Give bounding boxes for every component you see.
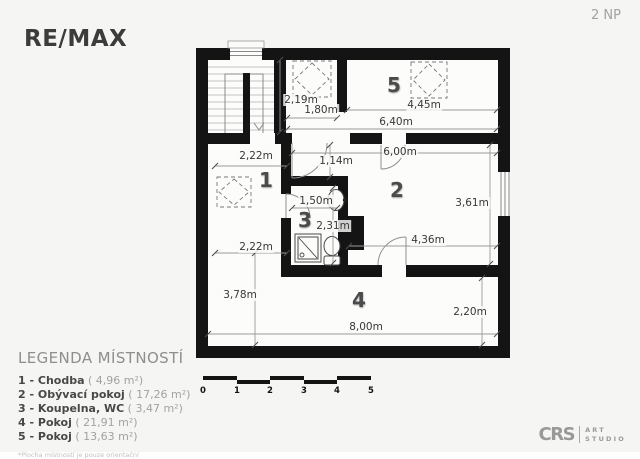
art-studio-logo: CRS ART STUDIO xyxy=(539,424,626,445)
dimension-label: 2,22m xyxy=(238,241,274,253)
scale-bar-graphic xyxy=(203,376,371,384)
legend-room-name: 5 - Pokoj xyxy=(18,430,72,443)
legend-room-name: 4 - Pokoj xyxy=(18,416,72,429)
room-label-4: 4 xyxy=(352,288,366,312)
dimension-label: 8,00m xyxy=(348,321,384,333)
room-legend: LEGENDA MÍSTNOSTÍ 1 - Chodba ( 4,96 m²) … xyxy=(18,349,190,459)
legend-room-name: 3 - Koupelna, WC xyxy=(18,402,124,415)
stair-center-wall xyxy=(243,73,250,133)
dimension-label: 1,50m xyxy=(298,195,334,207)
dimension-label: 2,31m xyxy=(315,220,351,232)
legend-footnote: *Plocha místností je pouze orientační xyxy=(18,451,190,459)
legend-item: 5 - Pokoj ( 13,63 m²) xyxy=(18,430,190,444)
dimension-label: 2,20m xyxy=(452,306,488,318)
legend-item: 2 - Obývací pokoj ( 17,26 m²) xyxy=(18,388,190,402)
legend-item: 3 - Koupelna, WC ( 3,47 m²) xyxy=(18,402,190,416)
legend-room-area: ( 17,26 m²) xyxy=(128,388,190,401)
room-label-5: 5 xyxy=(387,73,401,97)
room-label-2: 2 xyxy=(390,178,404,202)
room-label-1: 1 xyxy=(259,168,273,192)
dimension-label: 1,14m xyxy=(318,155,354,167)
studio-monogram: CRS xyxy=(539,424,575,445)
floorplan-page: RE/MAX 2 NP 1 2 3 4 5 2,19m 1,80m 4,45m … xyxy=(0,0,640,452)
logo-divider xyxy=(579,426,580,443)
dimension-label: 2,22m xyxy=(238,150,274,162)
legend-room-area: ( 3,47 m²) xyxy=(128,402,183,415)
legend-room-area: ( 4,96 m²) xyxy=(88,374,143,387)
dimension-label: 4,45m xyxy=(406,99,442,111)
dimension-label: 3,61m xyxy=(454,197,490,209)
studio-line1: ART xyxy=(585,426,626,435)
scale-number: 5 xyxy=(368,386,374,396)
dimension-label: 6,40m xyxy=(378,116,414,128)
legend-room-name: 2 - Obývací pokoj xyxy=(18,388,125,401)
legend-title: LEGENDA MÍSTNOSTÍ xyxy=(18,349,190,367)
legend-room-area: ( 13,63 m²) xyxy=(75,430,137,443)
legend-room-area: ( 21,91 m²) xyxy=(75,416,137,429)
dimension-label: 1,80m xyxy=(303,104,339,116)
scale-number: 0 xyxy=(200,386,206,396)
legend-item: 4 - Pokoj ( 21,91 m²) xyxy=(18,416,190,430)
toilet-bowl xyxy=(324,237,340,256)
legend-room-name: 1 - Chodba xyxy=(18,374,85,387)
scale-number: 2 xyxy=(267,386,273,396)
scale-number: 1 xyxy=(234,386,240,396)
studio-line2: STUDIO xyxy=(585,435,626,444)
dimension-label: 3,78m xyxy=(222,289,258,301)
scale-number: 4 xyxy=(334,386,340,396)
stair-window-sill xyxy=(228,41,264,48)
scale-number: 3 xyxy=(301,386,307,396)
dimension-label: 4,36m xyxy=(410,234,446,246)
room-label-3: 3 xyxy=(298,208,312,232)
dimension-label: 6,00m xyxy=(382,146,418,158)
washbasin-faucet xyxy=(343,198,347,202)
remax-logo: RE/MAX xyxy=(24,26,127,52)
floor-label: 2 NP xyxy=(591,8,621,23)
legend-item: 1 - Chodba ( 4,96 m²) xyxy=(18,374,190,388)
